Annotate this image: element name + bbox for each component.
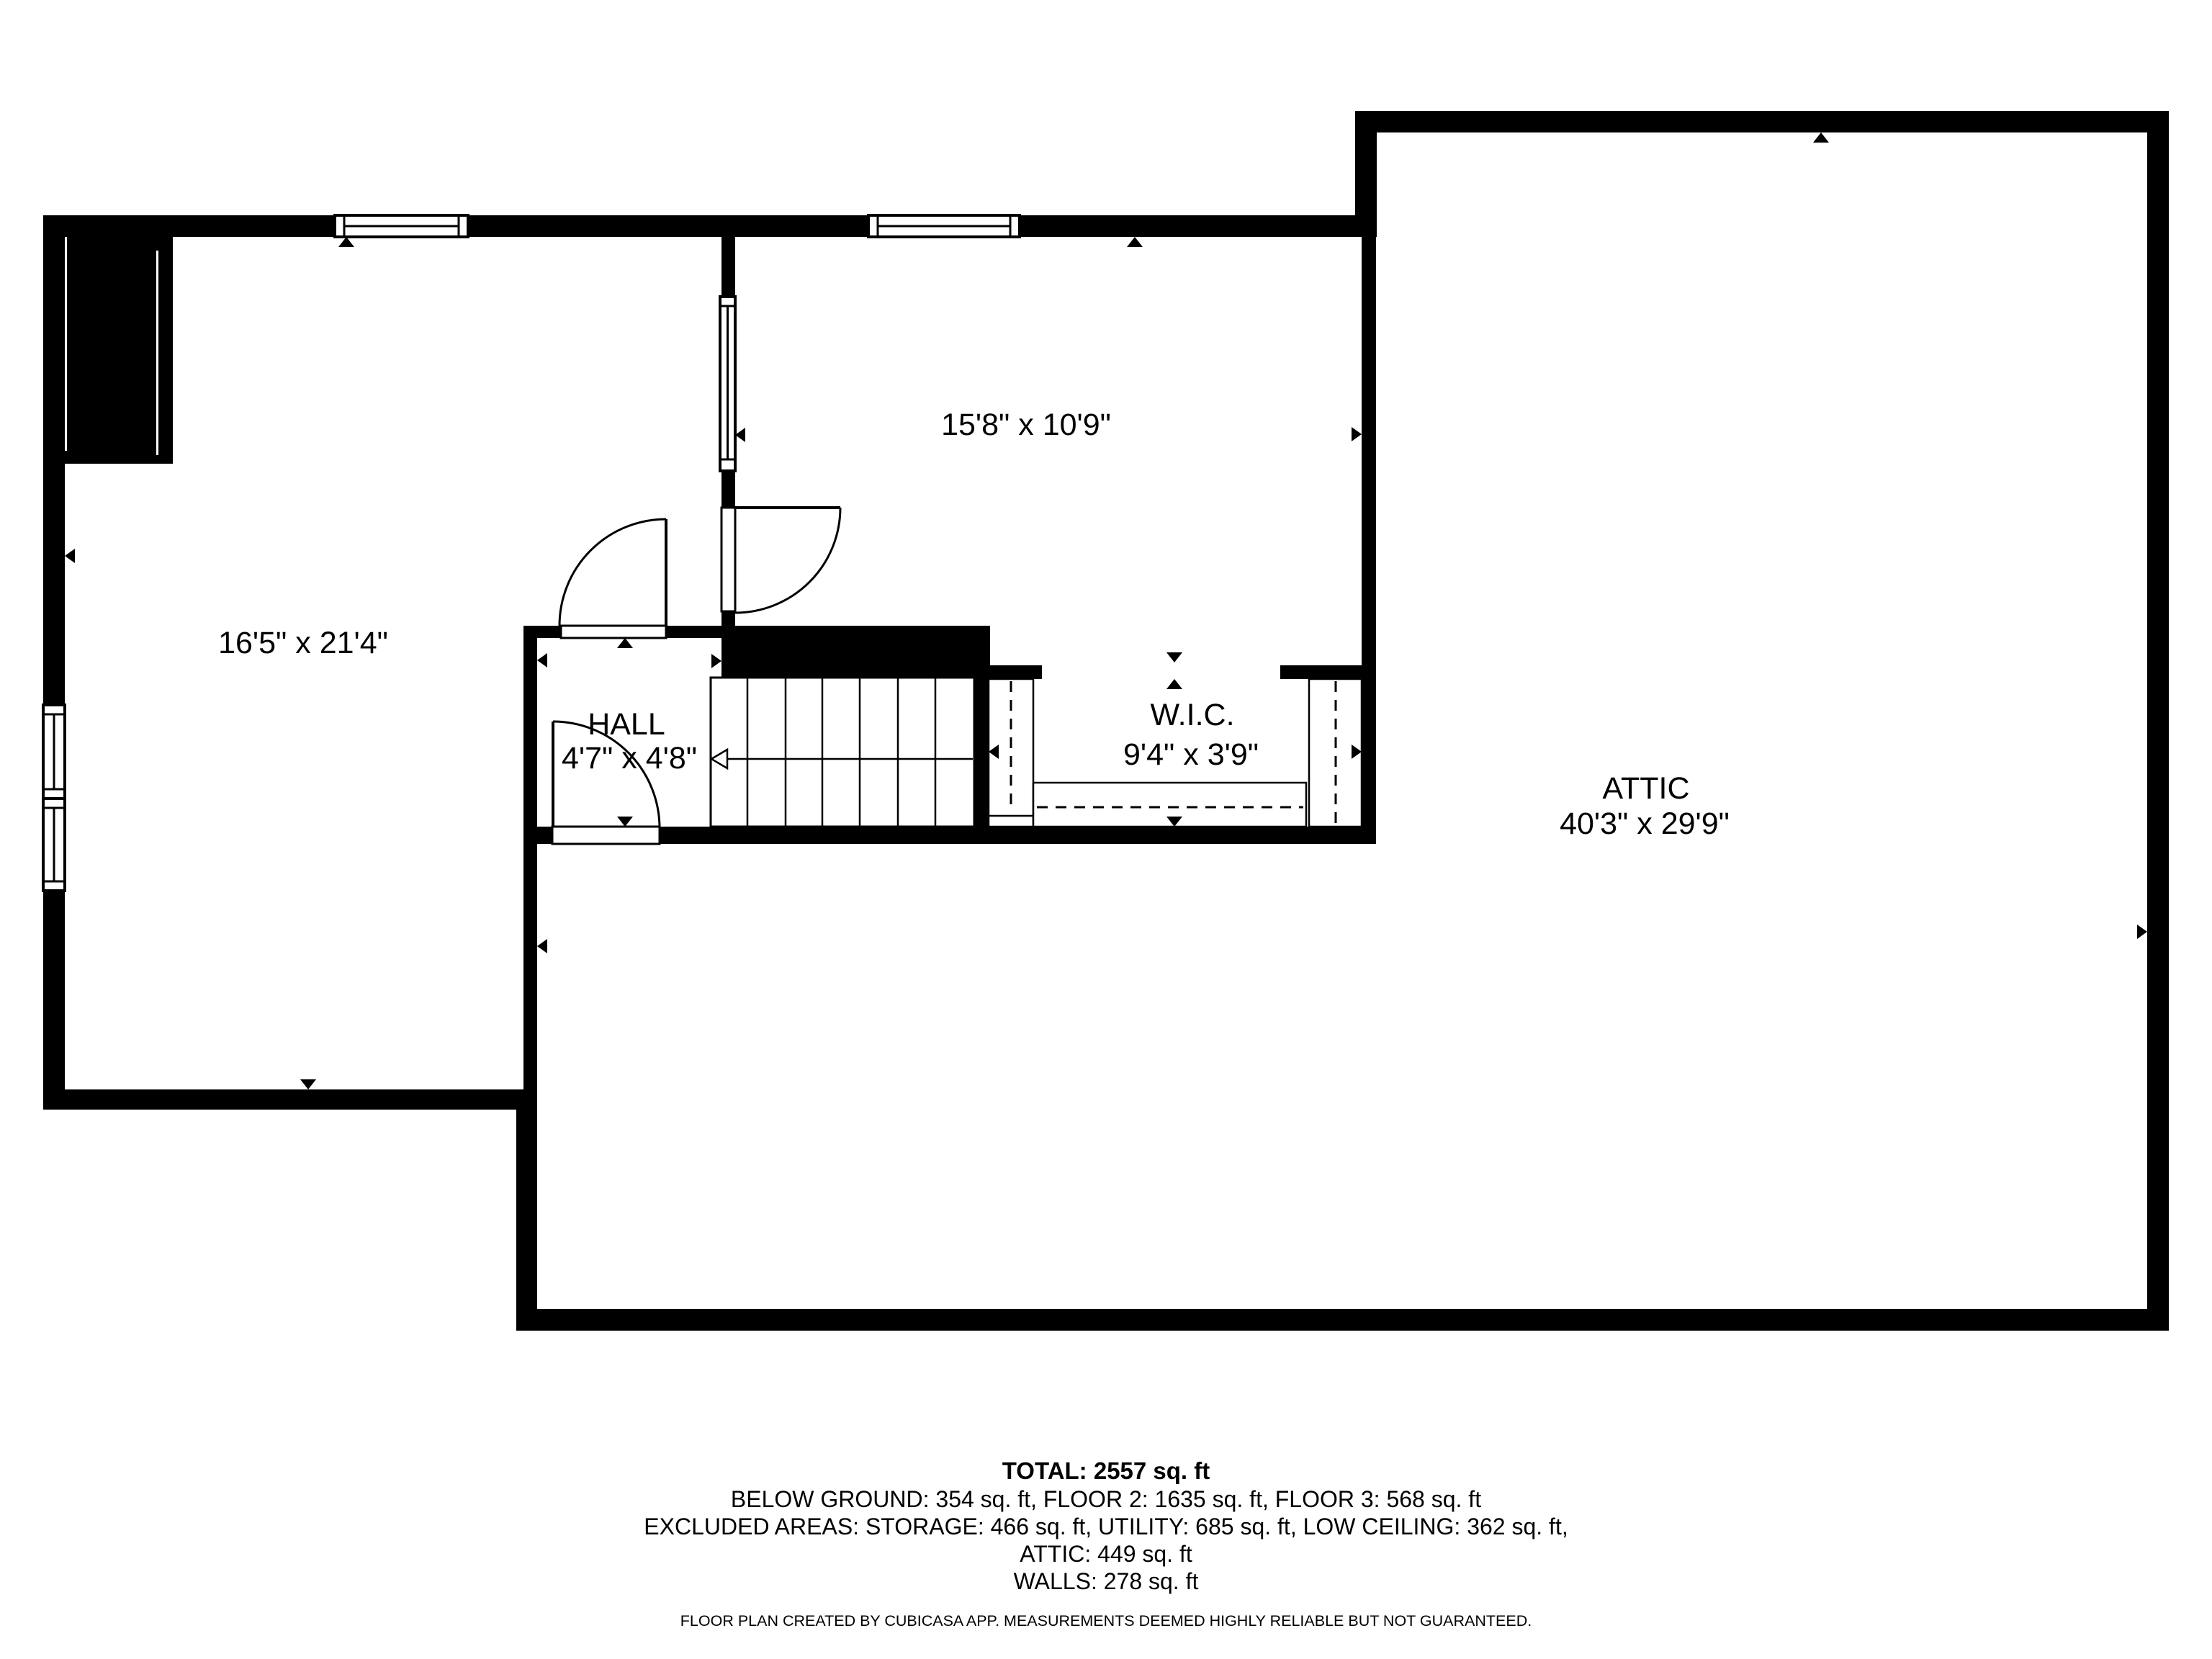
svg-text:40'3" x 29'9": 40'3" x 29'9"	[1560, 806, 1730, 841]
svg-text:15'8" x 10'9": 15'8" x 10'9"	[941, 408, 1111, 442]
svg-text:FLOOR PLAN CREATED BY CUBICASA: FLOOR PLAN CREATED BY CUBICASA APP. MEAS…	[680, 1612, 1532, 1629]
svg-text:ATTIC: 449 sq. ft: ATTIC: 449 sq. ft	[1020, 1541, 1192, 1567]
svg-text:WALLS: 278 sq. ft: WALLS: 278 sq. ft	[1014, 1568, 1199, 1594]
svg-text:16'5" x 21'4": 16'5" x 21'4"	[218, 626, 388, 660]
svg-text:TOTAL: 2557 sq. ft: TOTAL: 2557 sq. ft	[1002, 1457, 1210, 1484]
svg-text:BELOW GROUND: 354 sq. ft, FLOO: BELOW GROUND: 354 sq. ft, FLOOR 2: 1635 …	[731, 1486, 1481, 1512]
svg-text:9'4" x 3'9": 9'4" x 3'9"	[1123, 737, 1259, 772]
svg-text:EXCLUDED AREAS: STORAGE: 466 s: EXCLUDED AREAS: STORAGE: 466 sq. ft, UTI…	[644, 1514, 1568, 1539]
svg-text:4'7" x 4'8": 4'7" x 4'8"	[562, 741, 697, 775]
svg-text:W.I.C.: W.I.C.	[1150, 698, 1234, 732]
svg-text:HALL: HALL	[588, 707, 665, 742]
svg-text:ATTIC: ATTIC	[1602, 771, 1689, 806]
